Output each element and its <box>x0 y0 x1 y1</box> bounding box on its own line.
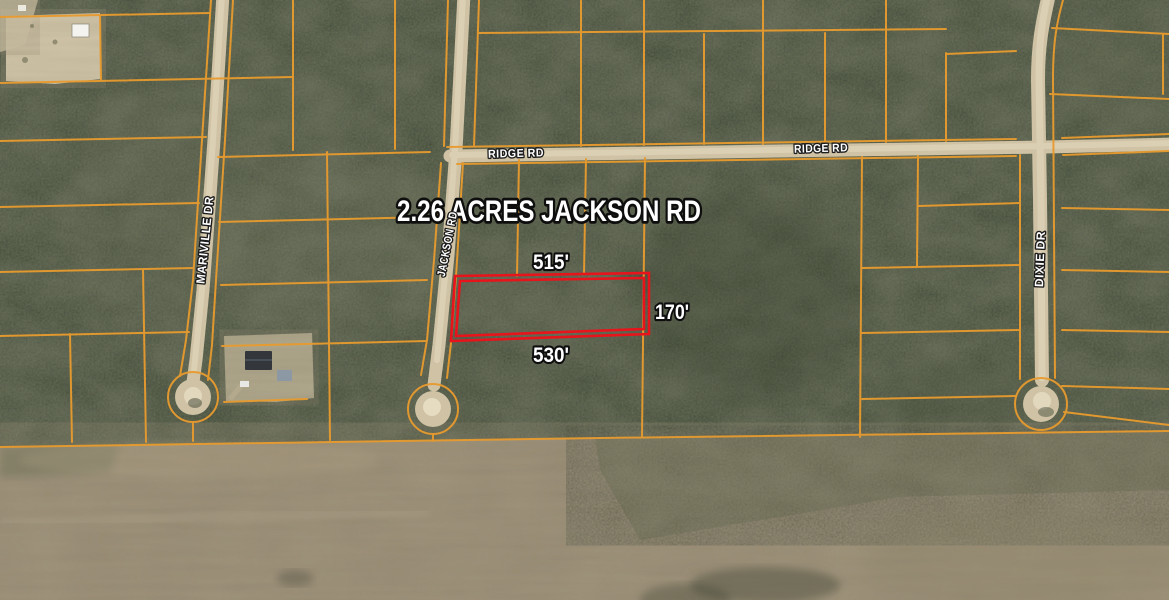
shed-roof <box>277 370 292 381</box>
road-label-dixie-dr: DIXIE DR <box>1032 231 1048 287</box>
road-label-ridge-rd-east: RIDGE RD <box>794 142 848 155</box>
small-building <box>72 24 89 37</box>
road-label-ridge-rd-west: RIDGE RD <box>488 147 544 160</box>
parcel-dimension-bottom: 530' <box>533 344 569 367</box>
parked-vehicle <box>240 381 249 387</box>
listing-title: 2.26 ACRES JACKSON RD <box>397 195 701 228</box>
aerial-parcel-map: 2.26 ACRES JACKSON RD 515' 170' 530' RID… <box>0 0 1169 600</box>
parcel-dimension-top: 515' <box>533 251 569 274</box>
parcel-dimension-right: 170' <box>655 301 689 324</box>
satellite-map-image: 2.26 ACRES JACKSON RD 515' 170' 530' RID… <box>0 0 1169 600</box>
